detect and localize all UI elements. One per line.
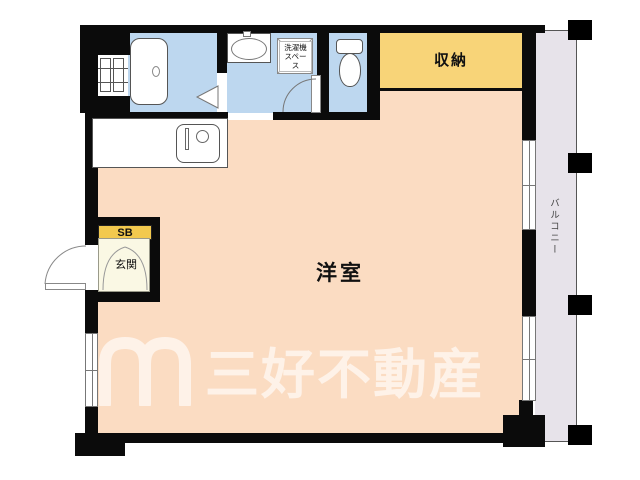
pillar xyxy=(568,425,592,445)
pipe-line xyxy=(98,68,128,69)
washbasin-icon xyxy=(231,38,267,60)
balcony-label-text: バルコニー xyxy=(548,198,559,256)
storage-bottom-line xyxy=(380,88,522,91)
pipe-shaft xyxy=(98,55,128,96)
window-divider xyxy=(523,359,535,360)
wall-entrance-bottom xyxy=(98,292,160,302)
window-right-lower xyxy=(522,316,536,401)
wall-right-mid xyxy=(522,230,536,316)
pipe-line xyxy=(98,82,128,83)
pillar xyxy=(568,20,592,40)
washer-space-label-line2: スペース xyxy=(282,52,309,70)
balcony-label: バルコニー xyxy=(546,198,560,256)
main-room-upper xyxy=(380,89,522,120)
wall-pipe-step xyxy=(98,96,130,113)
entrance-label-text: 玄関 xyxy=(115,256,137,272)
washer-space-label: 洗濯機 スペース xyxy=(279,45,312,67)
wall-bottomright-stem xyxy=(519,400,533,417)
shoe-box-label: SB xyxy=(117,227,132,239)
wall-left-mid xyxy=(85,290,98,335)
storage-label: 収納 xyxy=(380,33,522,85)
washroom-door-leaf xyxy=(311,75,321,113)
entrance-label: 玄関 xyxy=(100,252,152,276)
wall-bottomright-block xyxy=(503,415,545,447)
main-room-label-text: 洋室 xyxy=(316,257,364,287)
bathtub-icon xyxy=(130,38,168,105)
wall-sanitary-bottom-right xyxy=(273,112,380,120)
wall-top xyxy=(88,25,545,33)
washer-space-label-line1: 洗濯機 xyxy=(282,43,309,52)
wall-topleft-column xyxy=(80,25,98,113)
pillar xyxy=(568,153,592,173)
wall-toilet-storage xyxy=(367,25,380,120)
wall-right-upper xyxy=(522,25,536,140)
wall-bath-washroom xyxy=(217,33,227,73)
kitchen-drain-icon xyxy=(196,130,209,143)
window-left xyxy=(85,333,98,407)
toilet-tank-icon xyxy=(336,39,363,54)
toilet-bowl-icon xyxy=(339,53,361,87)
pillar xyxy=(568,295,592,315)
kitchen-sink-icon xyxy=(176,124,220,163)
meter-icon xyxy=(100,58,111,92)
main-room-label: 洋室 xyxy=(290,252,390,292)
entry-door-leaf xyxy=(45,283,86,290)
window-divider xyxy=(523,185,535,186)
window-divider xyxy=(86,370,97,371)
faucet-icon xyxy=(243,31,251,37)
kitchen-faucet-icon xyxy=(185,128,189,150)
storage-label-text: 収納 xyxy=(434,49,468,70)
wall-bottomleft-block xyxy=(75,433,125,456)
wall-bottom xyxy=(85,433,545,443)
floor-plan: SB 洗濯機 スペース 収納 洋室 玄関 バルコニー xyxy=(0,0,640,480)
meter-icon xyxy=(113,58,124,92)
window-right-upper xyxy=(522,140,536,230)
bathtub-drain-icon xyxy=(152,66,160,77)
